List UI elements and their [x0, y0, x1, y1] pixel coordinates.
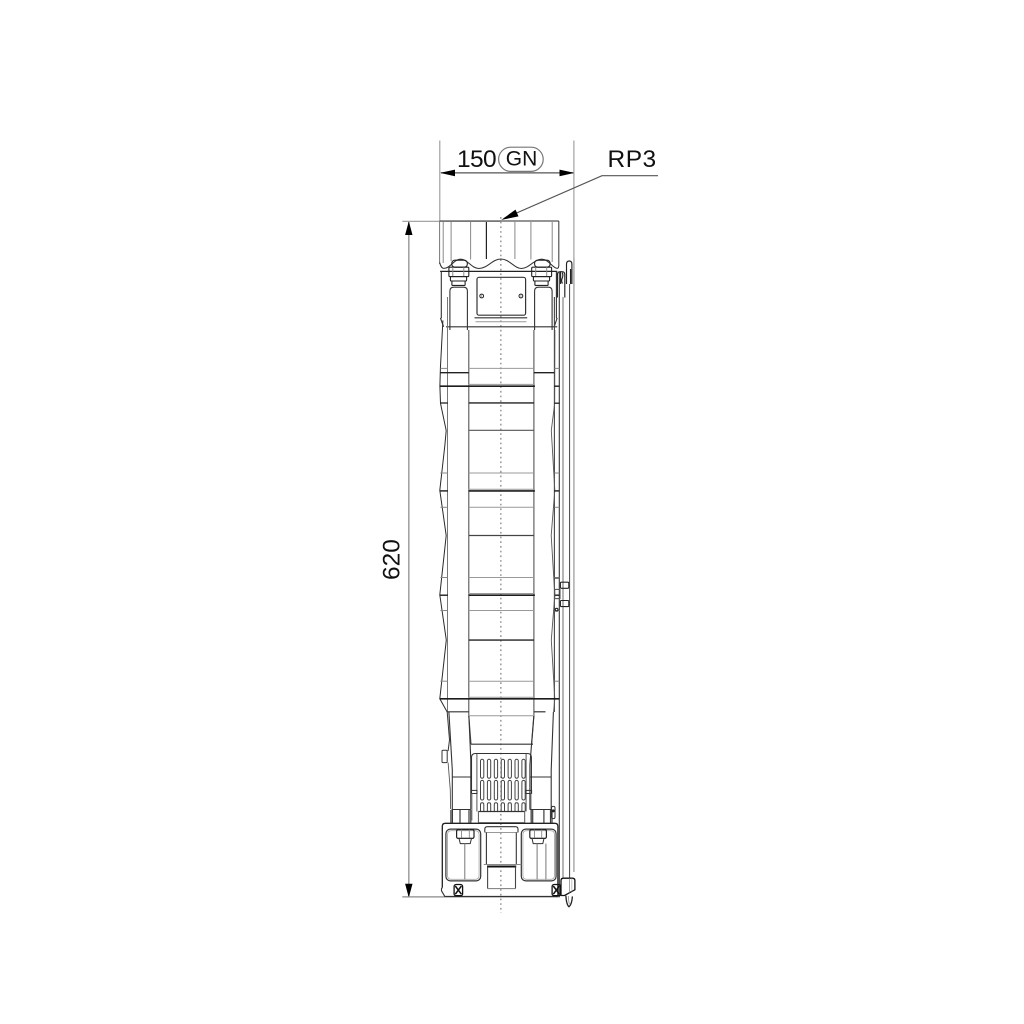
svg-text:620: 620 — [379, 539, 406, 580]
svg-text:RP3: RP3 — [608, 146, 657, 173]
svg-text:GN: GN — [506, 148, 538, 171]
svg-text:150: 150 — [457, 146, 496, 173]
